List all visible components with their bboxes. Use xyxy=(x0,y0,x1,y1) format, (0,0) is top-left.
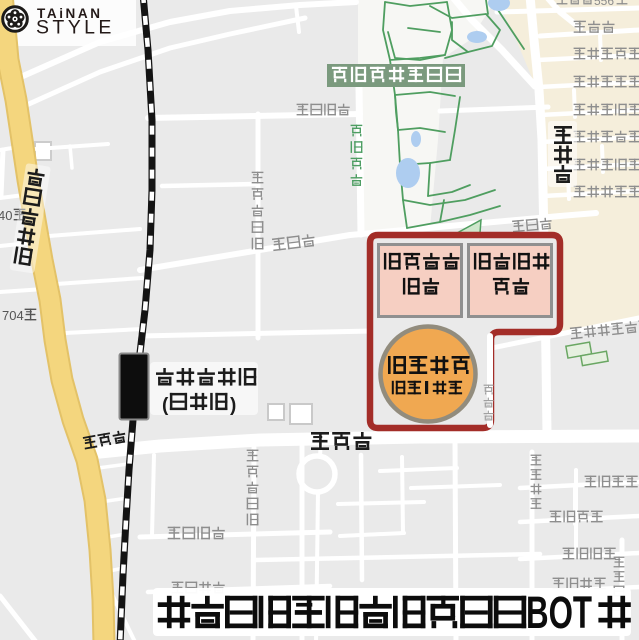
svg-text:704: 704 xyxy=(2,308,24,323)
svg-text:STYLE: STYLE xyxy=(36,17,115,39)
svg-text:): ) xyxy=(230,395,236,416)
svg-text:(: ( xyxy=(162,395,169,416)
svg-text:556: 556 xyxy=(594,0,614,8)
svg-text:BOT: BOT xyxy=(526,587,592,638)
svg-text:40: 40 xyxy=(0,208,12,223)
